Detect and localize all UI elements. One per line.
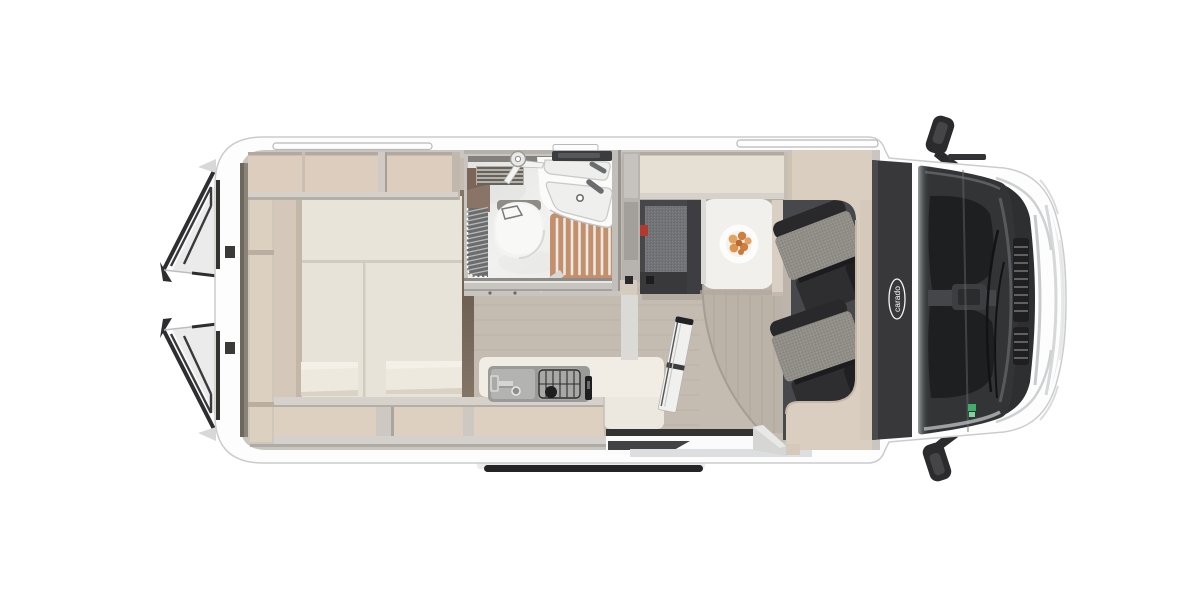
svg-text:carado: carado	[892, 286, 902, 312]
